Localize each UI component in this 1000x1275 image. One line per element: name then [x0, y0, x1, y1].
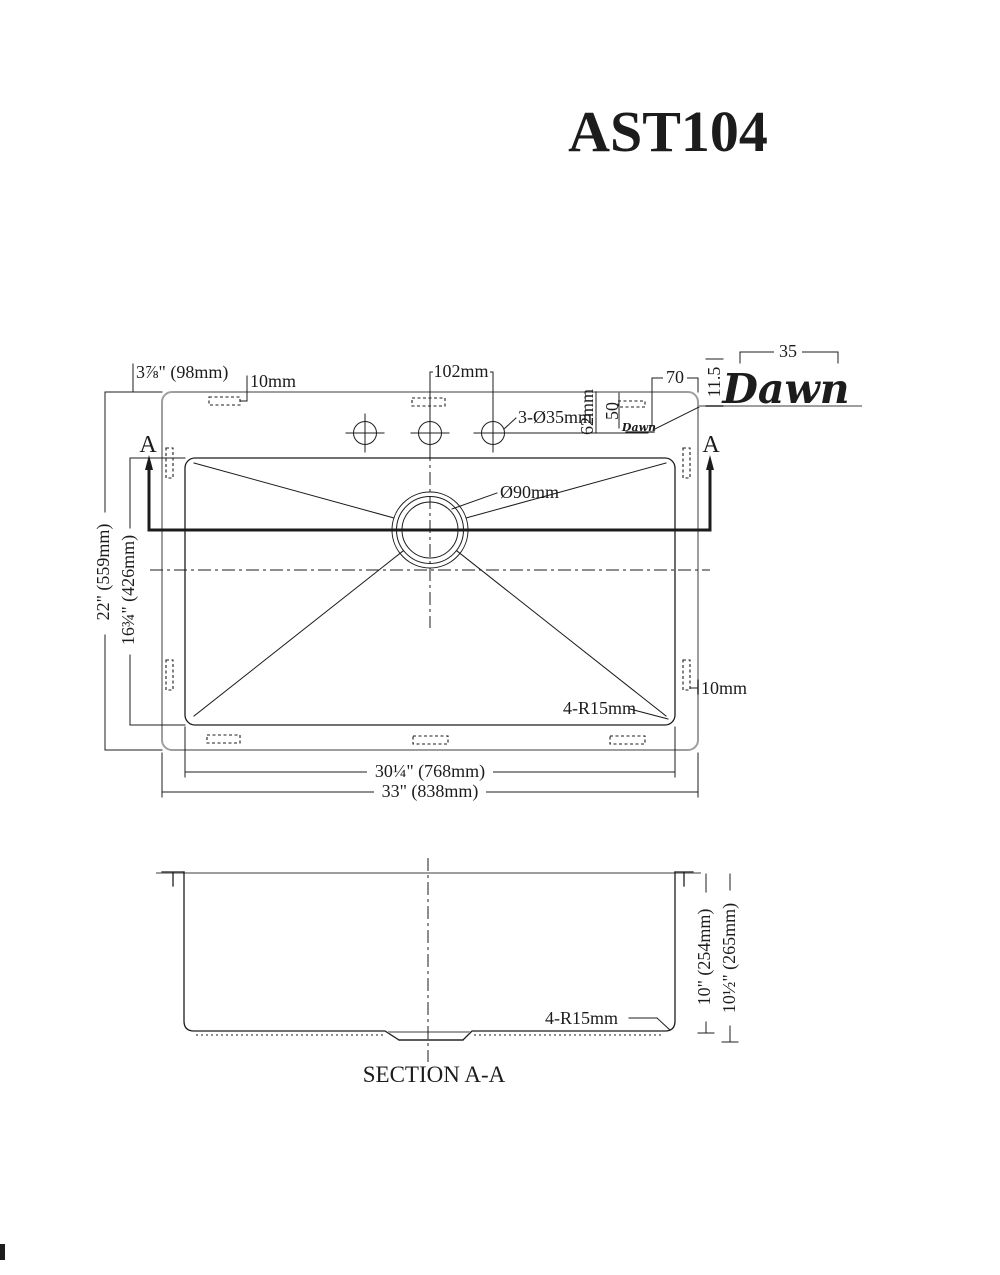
dim-hole-spacing-label: 102mm	[433, 361, 488, 381]
dim-clip-top-label: 10mm	[250, 371, 296, 391]
dim-overall-depth-label: 22" (559mm)	[93, 524, 114, 621]
section-marker-a-right: A	[702, 432, 720, 458]
dim-bowl-width: 30¼" (768mm)	[185, 727, 675, 782]
top-view: A A 3⅞" (98mm) 10mm 102mm 3-Ø35mm	[93, 341, 861, 802]
dim-clip-right-label: 10mm	[701, 678, 747, 698]
dim-logo-offset-x-label: 70	[666, 367, 684, 387]
dim-bowl-height-label: 10" (254mm)	[694, 909, 715, 1006]
dim-drain: Ø90mm	[452, 482, 559, 509]
section-view: 10" (254mm) 10½" (265mm) 4-R15mm SECTION…	[157, 858, 740, 1087]
dim-corner-radius-section-label: 4-R15mm	[545, 1008, 618, 1028]
section-caption: SECTION A-A	[363, 1062, 506, 1087]
dim-overall-height: 10½" (265mm)	[719, 874, 740, 1042]
technical-drawing: AST104	[0, 0, 1000, 1275]
dim-logo-offset-x: 70	[652, 367, 698, 426]
dim-bowl-width-label: 30¼" (768mm)	[375, 761, 485, 782]
dim-logo-height: 11.5	[704, 359, 724, 406]
dim-overall-height-label: 10½" (265mm)	[719, 903, 740, 1013]
scan-artifact	[0, 1244, 5, 1260]
dim-logo-width-label: 35	[779, 341, 797, 361]
dim-logo-offset-y-label: 50	[602, 402, 622, 420]
dim-overall-width-label: 33" (838mm)	[382, 781, 479, 802]
dim-corner-radius-top-label: 4-R15mm	[563, 698, 636, 718]
dim-corner-radius-section: 4-R15mm	[545, 1008, 670, 1030]
logo-detail: Dawn	[700, 365, 861, 413]
dim-drain-label: Ø90mm	[500, 482, 559, 502]
section-marker-a-left: A	[139, 432, 157, 458]
dim-hole-setback: 62mm	[577, 389, 597, 435]
centerlines	[150, 448, 710, 628]
dim-back-left-offset: 3⅞" (98mm)	[133, 362, 228, 392]
dim-logo-height-label: 11.5	[704, 367, 724, 398]
dim-bowl-height: 10" (254mm)	[694, 874, 715, 1033]
dim-back-left-offset-label: 3⅞" (98mm)	[136, 362, 228, 383]
dim-hole-setback-label: 62mm	[577, 389, 597, 435]
drawing-title: AST104	[568, 99, 768, 164]
dim-clip-top: 10mm	[240, 371, 296, 401]
dim-bowl-depth: 16¾" (426mm)	[118, 458, 185, 725]
logo-stamp: Dawn	[621, 406, 701, 434]
drawing-page: AST104	[0, 0, 1000, 1275]
dim-bowl-depth-label: 16¾" (426mm)	[118, 535, 139, 645]
dim-logo-offset-y: 50	[602, 393, 622, 428]
dim-corner-radius-top: 4-R15mm	[563, 698, 668, 719]
dim-logo-width: 35	[740, 341, 838, 363]
